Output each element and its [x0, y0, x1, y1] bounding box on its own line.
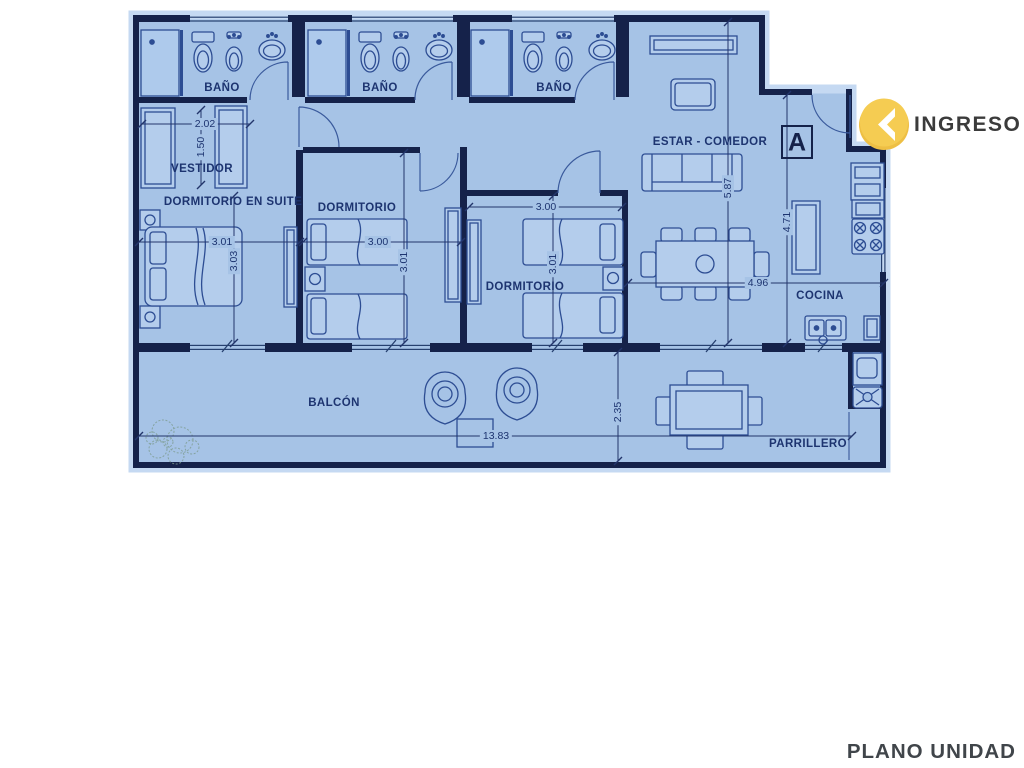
- bedroom2-label: DORMITORIO: [318, 202, 397, 214]
- dim-kitchen-depth: 4.71: [781, 209, 793, 235]
- dim-balcony-width: 13.83: [480, 430, 512, 442]
- dim-bedroom3-depth: 3.01: [547, 251, 559, 277]
- kitchen-label: COCINA: [796, 290, 844, 302]
- page-title: PLANO UNIDAD: [847, 740, 1016, 764]
- floorplan-page: BAÑO BAÑO BAÑO VESTIDOR DORMITORIO EN SU…: [0, 0, 1024, 768]
- master-bedroom-label: DORMITORIO EN SUITE: [164, 196, 302, 208]
- dim-master-depth: 3.03: [228, 248, 240, 274]
- dim-bedroom3-width: 3.00: [533, 201, 559, 213]
- dim-balcony-depth: 2.35: [612, 399, 624, 425]
- balcony-label: BALCÓN: [308, 397, 360, 409]
- bathroom3-label: BAÑO: [536, 82, 571, 94]
- dim-bedroom2-depth: 3.01: [398, 249, 410, 275]
- bathroom2-label: BAÑO: [362, 82, 397, 94]
- dim-living-kitchen-width: 4.96: [745, 277, 771, 289]
- grill-area-label: PARRILLERO: [769, 438, 847, 450]
- dim-master-width: 3.01: [209, 236, 235, 248]
- dim-dressing-depth: 1.50: [195, 134, 207, 160]
- dressing-label: VESTIDOR: [171, 163, 233, 175]
- bedroom3-label: DORMITORIO: [486, 281, 565, 293]
- entrance-label: INGRESO: [914, 113, 1021, 137]
- floorplan-graphics: [0, 0, 1024, 768]
- section-marker-a: A: [788, 129, 806, 158]
- living-room-label: ESTAR - COMEDOR: [653, 136, 767, 148]
- ingreso-chevron-icon: [859, 99, 909, 151]
- bathroom1-label: BAÑO: [204, 82, 239, 94]
- dim-dressing-width: 2.02: [192, 118, 218, 130]
- dim-bedroom2-width: 3.00: [365, 236, 391, 248]
- dim-living-depth: 5.87: [722, 175, 734, 201]
- grill-icon: [853, 353, 882, 408]
